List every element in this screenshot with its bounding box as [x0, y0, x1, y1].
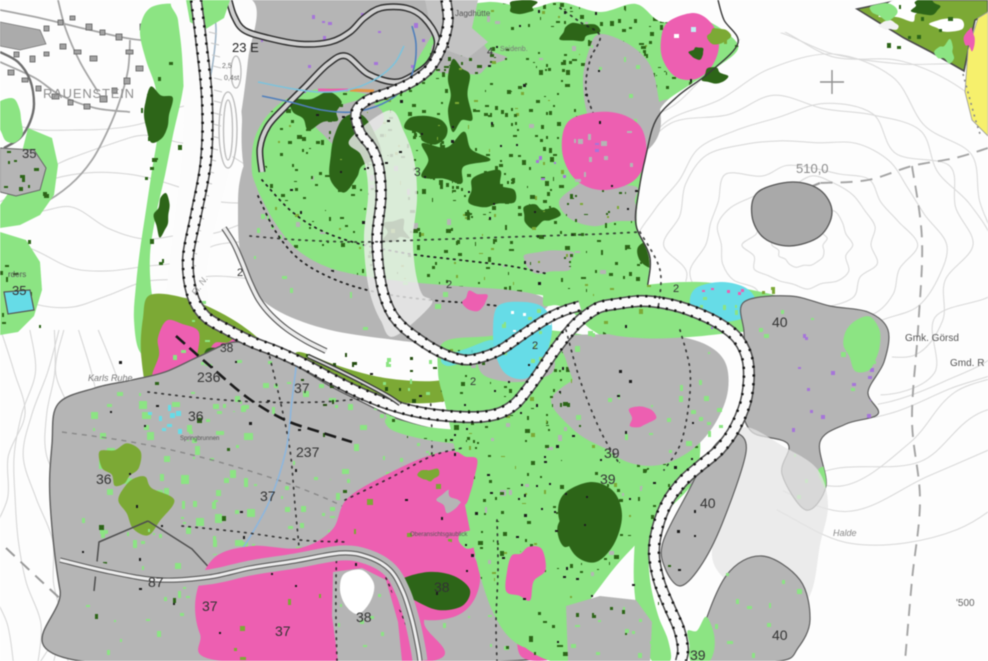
svg-text:37: 37	[260, 488, 276, 504]
svg-text:35: 35	[22, 146, 36, 161]
svg-text:Springbrunnen: Springbrunnen	[180, 436, 219, 442]
svg-text:Seidenb.: Seidenb.	[500, 46, 528, 53]
svg-text:Gmk. Görsd: Gmk. Görsd	[905, 333, 959, 344]
svg-text:510,0: 510,0	[796, 161, 829, 176]
svg-text:35: 35	[12, 283, 26, 298]
svg-text:40: 40	[772, 627, 788, 643]
svg-text:38: 38	[356, 609, 372, 625]
svg-text:2: 2	[237, 267, 243, 279]
svg-text:37: 37	[275, 623, 291, 639]
svg-text:39: 39	[690, 647, 706, 661]
svg-text:236: 236	[197, 369, 221, 385]
svg-text:4: 4	[487, 46, 493, 58]
svg-text:'500: '500	[956, 598, 975, 609]
svg-text:rders: rders	[8, 270, 26, 279]
svg-text:RAUENSTEIN: RAUENSTEIN	[43, 86, 135, 101]
svg-text:39: 39	[604, 445, 620, 461]
svg-text:Gmd. R: Gmd. R	[950, 358, 984, 369]
svg-text:237: 237	[296, 444, 320, 460]
svg-text:Halde: Halde	[833, 528, 857, 538]
svg-text:2: 2	[446, 279, 452, 291]
svg-text:2: 2	[470, 376, 476, 388]
svg-text:2: 2	[532, 340, 538, 352]
svg-text:Jagdhütte: Jagdhütte	[455, 9, 491, 18]
svg-text:40: 40	[700, 495, 716, 511]
svg-text:2,5: 2,5	[222, 63, 232, 70]
svg-text:37: 37	[294, 380, 310, 396]
svg-text:38: 38	[220, 341, 234, 355]
svg-text:39: 39	[600, 471, 616, 487]
svg-text:36: 36	[96, 471, 112, 487]
svg-text:38: 38	[434, 579, 450, 595]
svg-text:Karls Ruhe: Karls Ruhe	[88, 373, 133, 383]
svg-text:37: 37	[202, 598, 218, 614]
svg-text:2: 2	[673, 283, 679, 295]
svg-text:23 E: 23 E	[232, 40, 259, 55]
svg-text:87: 87	[148, 574, 164, 590]
svg-text:3: 3	[414, 165, 421, 179]
svg-text:Oberansichtsgaublick: Oberansichtsgaublick	[410, 532, 468, 538]
svg-text:40: 40	[772, 314, 788, 330]
svg-text:36: 36	[188, 408, 204, 424]
svg-text:0,4st: 0,4st	[224, 75, 239, 82]
